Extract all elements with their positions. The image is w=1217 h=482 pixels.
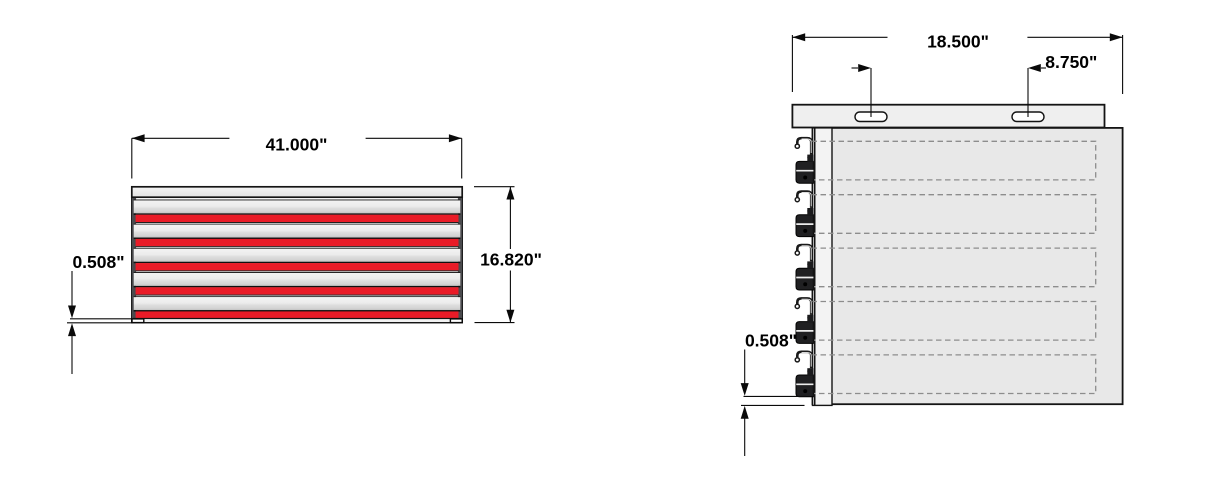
svg-text:0.508": 0.508" — [72, 252, 124, 272]
svg-text:16.820": 16.820" — [480, 250, 542, 270]
svg-text:41.000": 41.000" — [266, 135, 328, 155]
svg-text:0.508": 0.508" — [745, 331, 797, 351]
svg-text:18.500": 18.500" — [927, 32, 989, 52]
svg-text:8.750": 8.750" — [1045, 52, 1097, 72]
